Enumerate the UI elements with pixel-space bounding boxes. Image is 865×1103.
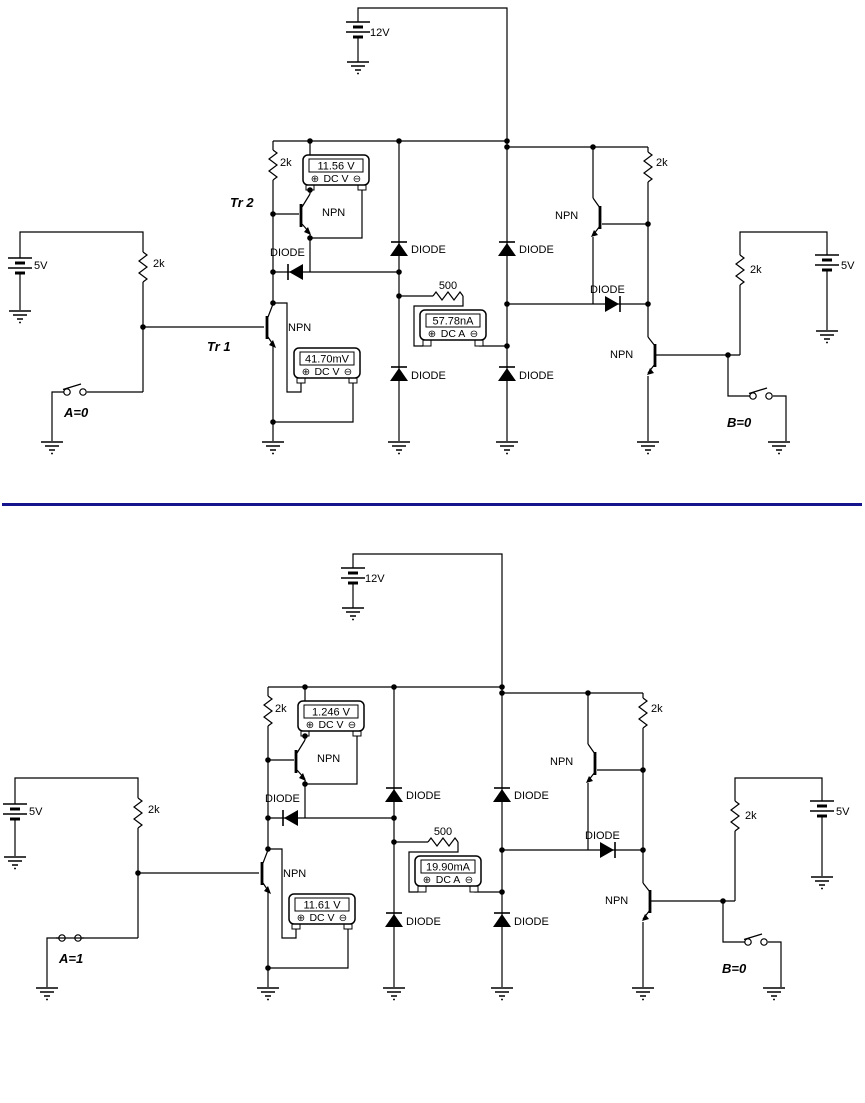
transistor-tr2-npn: NPN (296, 740, 340, 781)
ground-icon (41, 442, 63, 454)
npn-label: NPN (610, 349, 633, 361)
ground-icon (496, 442, 518, 454)
ground-icon (811, 877, 833, 889)
diode-chain-right-upper: DIODE (498, 242, 554, 256)
resistor-collector-2k: 2k (644, 152, 668, 182)
diode-label: DIODE (590, 284, 625, 296)
ground-icon (383, 988, 405, 1000)
resistor-input-2k: 2k (134, 798, 160, 828)
transistor-upper-right-npn: NPN (550, 744, 595, 783)
meter-mode: DC V (314, 366, 339, 378)
ground-icon (347, 62, 369, 74)
npn-label: NPN (283, 868, 306, 880)
switch-b[interactable]: B=0 (722, 934, 767, 976)
circuit-bottom: 12V 5V 5V 2k 2k 2k 2k 5 (3, 554, 850, 1000)
diode-left-horizontal: DIODE (270, 247, 305, 280)
battery-5v-left-label: 5V (34, 260, 48, 272)
battery-12v-label: 12V (370, 27, 390, 39)
resistor-value: 2k (656, 157, 668, 169)
ammeter: 57.78nA ⊕ DC A ⊖ (420, 310, 486, 346)
plus-terminal-icon: ⊕ (428, 329, 436, 340)
diode-left-horizontal: DIODE (265, 793, 300, 826)
minus-terminal-icon: ⊖ (353, 174, 361, 185)
ground-icon (9, 311, 31, 323)
diode-right-horizontal: DIODE (590, 284, 625, 312)
battery-5v-left: 5V (3, 804, 43, 819)
resistor-collector-2k: 2k (639, 698, 663, 728)
switch-b-label: B=0 (722, 961, 747, 976)
diode-label: DIODE (411, 370, 446, 382)
plus-terminal-icon: ⊕ (311, 174, 319, 185)
minus-terminal-icon: ⊖ (470, 329, 478, 340)
resistor-value: 2k (750, 264, 762, 276)
voltmeter-tr1: 41.70mV ⊕ DC V ⊖ (294, 348, 360, 383)
diode-chain-right-lower: DIODE (493, 913, 549, 928)
diode-label: DIODE (514, 916, 549, 928)
resistor-series-500: 500 (433, 280, 463, 300)
divider-line (2, 503, 862, 506)
transistor-output-npn: NPN (605, 883, 650, 921)
meter-mode: DC V (309, 912, 334, 924)
meter-reading: 41.70mV (305, 354, 350, 366)
diode-label: DIODE (270, 247, 305, 259)
switch-a-label: A=0 (63, 405, 89, 420)
meter-mode: DC V (323, 173, 348, 185)
transistor-tr1-npn: NPN (267, 304, 311, 348)
npn-label: NPN (555, 210, 578, 222)
ground-icon (768, 442, 790, 454)
battery-12v: 12V (341, 568, 385, 585)
diode-chain-right-lower: DIODE (498, 367, 554, 382)
switch-b-label: B=0 (727, 415, 752, 430)
ground-icon (637, 442, 659, 454)
battery-5v-right-label: 5V (841, 260, 855, 272)
meter-mode: DC A (436, 874, 461, 886)
meter-reading: 1.246 V (312, 707, 351, 719)
ground-icon (632, 988, 654, 1000)
ammeter: 19.90mA ⊕ DC A ⊖ (415, 856, 481, 892)
ground-icon (36, 988, 58, 1000)
resistor-bias-2k: 2k (269, 150, 292, 180)
voltmeter-tr2: 11.56 V ⊕ DC V ⊖ (303, 155, 369, 190)
meter-reading: 19.90mA (426, 862, 471, 874)
minus-terminal-icon: ⊖ (339, 913, 347, 924)
diode-label: DIODE (406, 916, 441, 928)
minus-terminal-icon: ⊖ (344, 367, 352, 378)
plus-terminal-icon: ⊕ (302, 367, 310, 378)
diode-label: DIODE (265, 793, 300, 805)
battery-12v-label: 12V (365, 573, 385, 585)
battery-5v-right: 5V (815, 255, 855, 272)
battery-5v-right-label: 5V (836, 806, 850, 818)
diode-label: DIODE (519, 244, 554, 256)
resistor-output-2k: 2k (731, 801, 757, 831)
plus-terminal-icon: ⊕ (297, 913, 305, 924)
transistor-upper-right-npn: NPN (555, 198, 600, 237)
npn-label: NPN (605, 895, 628, 907)
ground-icon (491, 988, 513, 1000)
battery-5v-left: 5V (8, 258, 48, 273)
resistor-series-500: 500 (428, 826, 458, 846)
switch-a[interactable]: A=1 (56, 935, 84, 966)
diode-label: DIODE (519, 370, 554, 382)
transistor-tr1-npn: NPN (262, 850, 306, 894)
diode-chain-left-upper: DIODE (385, 788, 441, 802)
diode-label: DIODE (585, 830, 620, 842)
transistor-output-npn: NPN (610, 337, 655, 375)
resistor-value: 2k (745, 810, 757, 822)
ground-icon (342, 608, 364, 620)
tr2-designator: Tr 2 (230, 195, 254, 210)
diode-label: DIODE (514, 790, 549, 802)
resistor-value: 500 (439, 280, 457, 292)
meter-mode: DC A (441, 328, 466, 340)
ground-icon (388, 442, 410, 454)
plus-terminal-icon: ⊕ (306, 720, 314, 731)
diode-chain-right-upper: DIODE (493, 788, 549, 802)
diode-label: DIODE (411, 244, 446, 256)
resistor-output-2k: 2k (736, 255, 762, 285)
schematic-page: 12V 5V 5V 2k 2k 2k 2k (0, 0, 865, 1103)
switch-b[interactable]: B=0 (727, 388, 772, 430)
resistor-input-2k: 2k (139, 252, 165, 282)
voltmeter-tr1: 11.61 V ⊕ DC V ⊖ (289, 894, 355, 929)
npn-label: NPN (317, 753, 340, 765)
resistor-value: 500 (434, 826, 452, 838)
ground-icon (262, 442, 284, 454)
meter-reading: 11.56 V (317, 161, 355, 173)
ground-icon (816, 331, 838, 343)
diode-chain-left-lower: DIODE (385, 913, 441, 928)
battery-5v-left-label: 5V (29, 806, 43, 818)
resistor-value: 2k (280, 157, 292, 169)
resistor-value: 2k (651, 703, 663, 715)
npn-label: NPN (322, 207, 345, 219)
minus-terminal-icon: ⊖ (465, 875, 473, 886)
voltmeter-tr2: 1.246 V ⊕ DC V ⊖ (298, 701, 364, 736)
npn-label: NPN (288, 322, 311, 334)
resistor-bias-2k: 2k (264, 696, 287, 726)
ground-icon (4, 857, 26, 869)
transistor-tr2-npn: NPN (301, 194, 345, 235)
meter-mode: DC V (318, 719, 343, 731)
switch-a-label: A=1 (58, 951, 83, 966)
plus-terminal-icon: ⊕ (423, 875, 431, 886)
meter-reading: 11.61 V (303, 900, 341, 912)
battery-5v-right: 5V (810, 801, 850, 818)
resistor-value: 2k (153, 258, 165, 270)
circuit-top: 12V 5V 5V 2k 2k 2k 2k (8, 8, 855, 454)
meter-reading: 57.78nA (433, 316, 475, 328)
battery-12v: 12V (346, 22, 390, 39)
diode-right-horizontal: DIODE (585, 830, 620, 858)
minus-terminal-icon: ⊖ (348, 720, 356, 731)
diode-label: DIODE (406, 790, 441, 802)
tr1-designator: Tr 1 (207, 339, 231, 354)
resistor-value: 2k (148, 804, 160, 816)
switch-a[interactable]: A=0 (63, 384, 89, 420)
npn-label: NPN (550, 756, 573, 768)
resistor-value: 2k (275, 703, 287, 715)
ground-icon (763, 988, 785, 1000)
diode-chain-left-lower: DIODE (390, 367, 446, 382)
diode-chain-left-upper: DIODE (390, 242, 446, 256)
ground-icon (257, 988, 279, 1000)
